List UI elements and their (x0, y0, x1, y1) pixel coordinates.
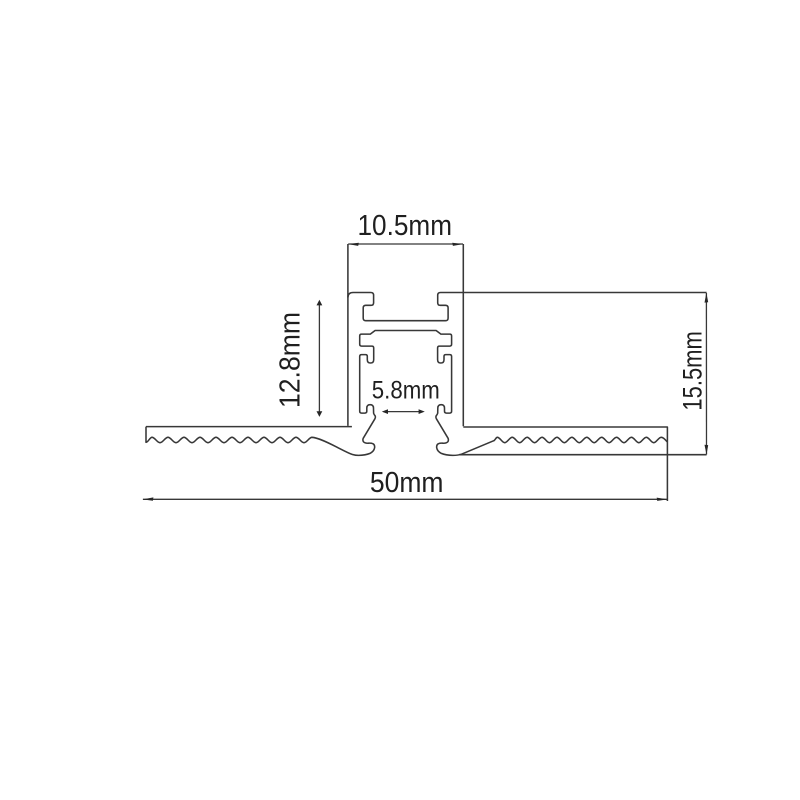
svg-text:5.8mm: 5.8mm (372, 377, 440, 405)
svg-text:12.8mm: 12.8mm (275, 312, 307, 408)
svg-text:50mm: 50mm (370, 467, 444, 499)
svg-text:10.5mm: 10.5mm (358, 210, 453, 242)
svg-text:15.5mm: 15.5mm (678, 331, 708, 410)
